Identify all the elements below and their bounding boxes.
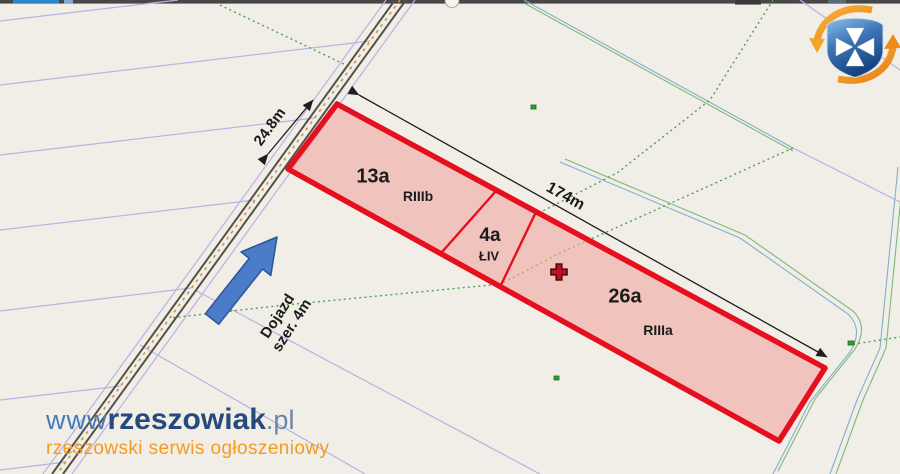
- site-watermark: wwwrzeszowiak.pl rzeszowski serwis ogłos…: [46, 403, 329, 460]
- access-direction-arrow: [205, 237, 277, 324]
- rzeszow-crest-logo-icon: [809, 9, 900, 81]
- watermark-tagline: rzeszowski serwis ogłoszeniowy: [46, 438, 329, 460]
- parcel-area-label-4a: 4a: [479, 225, 500, 247]
- cropped-toolbar-sliver: [0, 0, 900, 8]
- cadastral-lines-left: [0, 0, 370, 470]
- listing-map-image: 13a RIIIb 4a ŁIV 26a RIIIa 24.8m 174m Do…: [0, 0, 900, 474]
- watermark-tld: .pl: [266, 405, 295, 436]
- soil-class-label-liv: ŁIV: [479, 250, 499, 265]
- soil-class-label-riiia: RIIIa: [643, 322, 673, 338]
- site-watermark-logo: wwwrzeszowiak.pl: [46, 403, 329, 437]
- parcel-area-label-26a: 26a: [608, 286, 641, 309]
- parcel-area-label-13a: 13a: [356, 166, 389, 189]
- soil-class-label-riiib: RIIIb: [403, 188, 433, 204]
- watermark-brand: rzeszowiak: [108, 403, 266, 437]
- watermark-www: www: [46, 405, 108, 436]
